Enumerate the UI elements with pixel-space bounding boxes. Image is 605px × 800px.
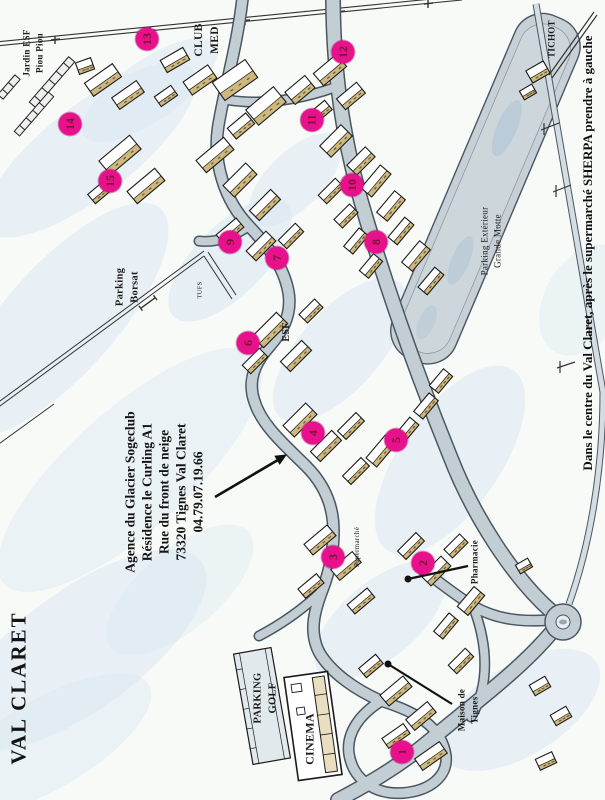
label-line: MED [207,23,223,56]
label-line: Piou Piou [33,29,46,76]
label-line: CLUB [191,23,207,56]
label-line: PARKING [251,673,266,724]
agency-address-block: Agence du Glacier Sogeclub Résidence le … [122,411,207,572]
label-line: Borsat [128,268,143,306]
label-parking-exterieur-grande-motte: Parking ExtérieurGrande Motte [478,207,503,276]
label-line: TUFS [195,281,204,298]
map-marker-5: 5 [385,429,408,452]
marker-number: 11 [305,114,320,125]
agency-line: Résidence le Curling A1 [139,411,156,572]
marker-number: 1 [395,749,410,755]
label-parking-borsat: ParkingBorsat [113,268,142,306]
map-marker-3: 3 [322,546,345,569]
label-esf: ESF [280,322,294,341]
marker-number: 5 [389,437,404,443]
agency-line: 73320 Tignes Val Claret [173,411,190,572]
label-supermarche: Supermarché [353,527,363,567]
label-line: Tignes [468,689,481,731]
map-marker-9: 9 [219,231,242,254]
val-claret-resort-map: VAL CLARET Dans le centre du Val Claret,… [0,0,605,800]
label-line: Maison de [455,689,468,731]
map-marker-2: 2 [412,552,435,575]
marker-number: 12 [336,46,351,58]
label-club-med: CLUBMED [191,23,223,56]
map-marker-10: 10 [341,174,364,197]
agency-line: Rue du front de neige [156,411,173,572]
label-line: Grande Motte [491,207,504,276]
marker-number: 13 [140,33,155,45]
sidebar-note: Dans le centre du Val Claret, après le s… [580,35,596,470]
marker-number: 9 [223,239,238,245]
map-marker-8: 8 [365,231,388,254]
marker-number: 10 [345,179,360,191]
agency-line: 04.79.07.19.66 [190,411,207,572]
map-marker-13: 13 [136,28,159,51]
label-tichot: TICHOT [546,20,559,58]
label-line: CINEMA [302,713,319,765]
marker-number: 2 [416,560,431,566]
label-line: Parking [113,268,128,306]
map-marker-12: 12 [332,41,355,64]
roundabout [545,604,581,640]
map-marker-7: 7 [266,247,289,270]
label-line: ESF [280,322,294,341]
page-title: VAL CLARET [7,611,32,764]
label-line: Parking Extérieur [478,207,491,276]
marker-number: 14 [63,118,78,130]
agency-line: Agence du Glacier Sogeclub [122,411,139,572]
map-marker-11: 11 [301,109,324,132]
marker-number: 8 [369,239,384,245]
label-line: GOLF [266,673,281,724]
label-parking-golf: PARKINGGOLF [251,673,280,724]
marker-number: 15 [103,175,118,187]
map-marker-1: 1 [391,741,414,764]
marker-number: 6 [241,340,256,346]
label-jardin-esf-piou-piou: Jardin ESFPiou Piou [20,29,45,76]
label-line: Jardin ESF [20,29,33,76]
label-line: TICHOT [546,20,559,58]
marker-number: 7 [270,255,285,261]
label-tufs: TUFS [195,281,204,298]
label-line: Pharmacie [469,540,482,584]
map-marker-6: 6 [237,332,260,355]
label-pharmacie: Pharmacie [469,540,482,584]
marker-number: 4 [306,430,321,436]
label-line: Supermarché [353,527,363,567]
map-marker-15: 15 [99,170,122,193]
map-marker-4: 4 [302,422,325,445]
map-marker-14: 14 [59,113,82,136]
label-maison-de-tignes: Maison deTignes [455,689,480,731]
label-cinema: CINEMA [302,713,319,765]
marker-number: 3 [326,554,341,560]
